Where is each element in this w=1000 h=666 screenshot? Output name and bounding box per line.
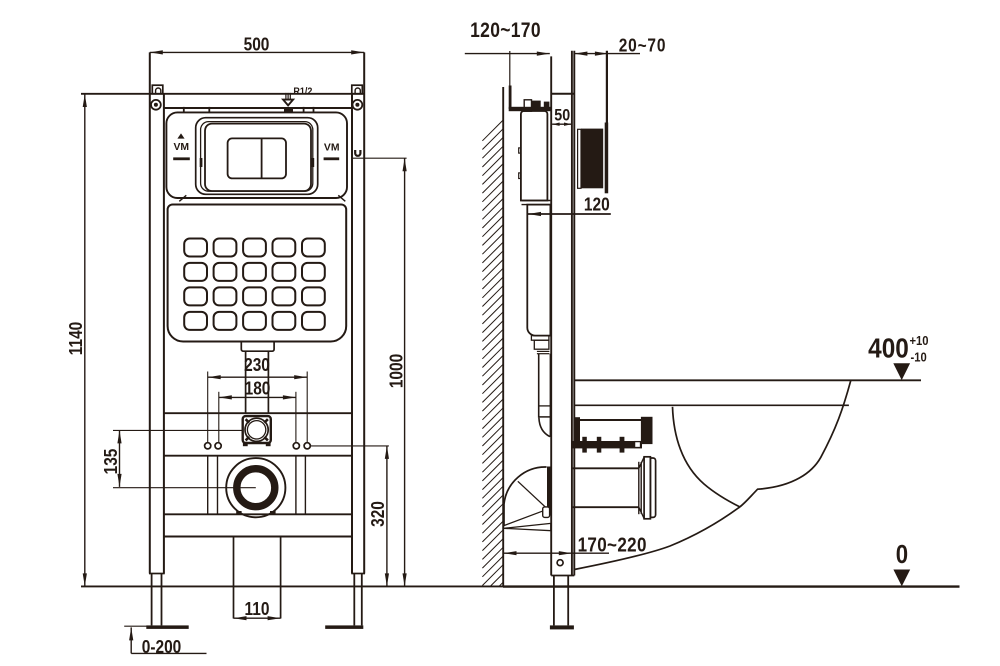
svg-text:50: 50: [554, 106, 570, 124]
svg-text:135: 135: [101, 449, 122, 475]
svg-text:500: 500: [244, 34, 270, 55]
svg-text:1000: 1000: [386, 354, 407, 388]
svg-text:R1/2: R1/2: [293, 86, 312, 98]
svg-text:VM: VM: [324, 142, 340, 153]
svg-text:20~70: 20~70: [619, 35, 667, 56]
svg-text:+10: +10: [910, 333, 929, 348]
svg-text:0: 0: [896, 541, 908, 570]
svg-text:-10: -10: [911, 350, 927, 365]
svg-text:VM: VM: [174, 142, 190, 153]
svg-text:120: 120: [584, 194, 610, 215]
svg-text:170~220: 170~220: [578, 533, 647, 556]
svg-text:110: 110: [245, 599, 270, 620]
svg-text:120~170: 120~170: [470, 20, 541, 43]
svg-text:180: 180: [245, 378, 271, 399]
svg-text:0-200: 0-200: [142, 637, 182, 658]
svg-text:1140: 1140: [66, 322, 87, 356]
svg-text:320: 320: [368, 501, 389, 527]
svg-text:400: 400: [868, 332, 909, 364]
svg-text:230: 230: [244, 355, 270, 376]
